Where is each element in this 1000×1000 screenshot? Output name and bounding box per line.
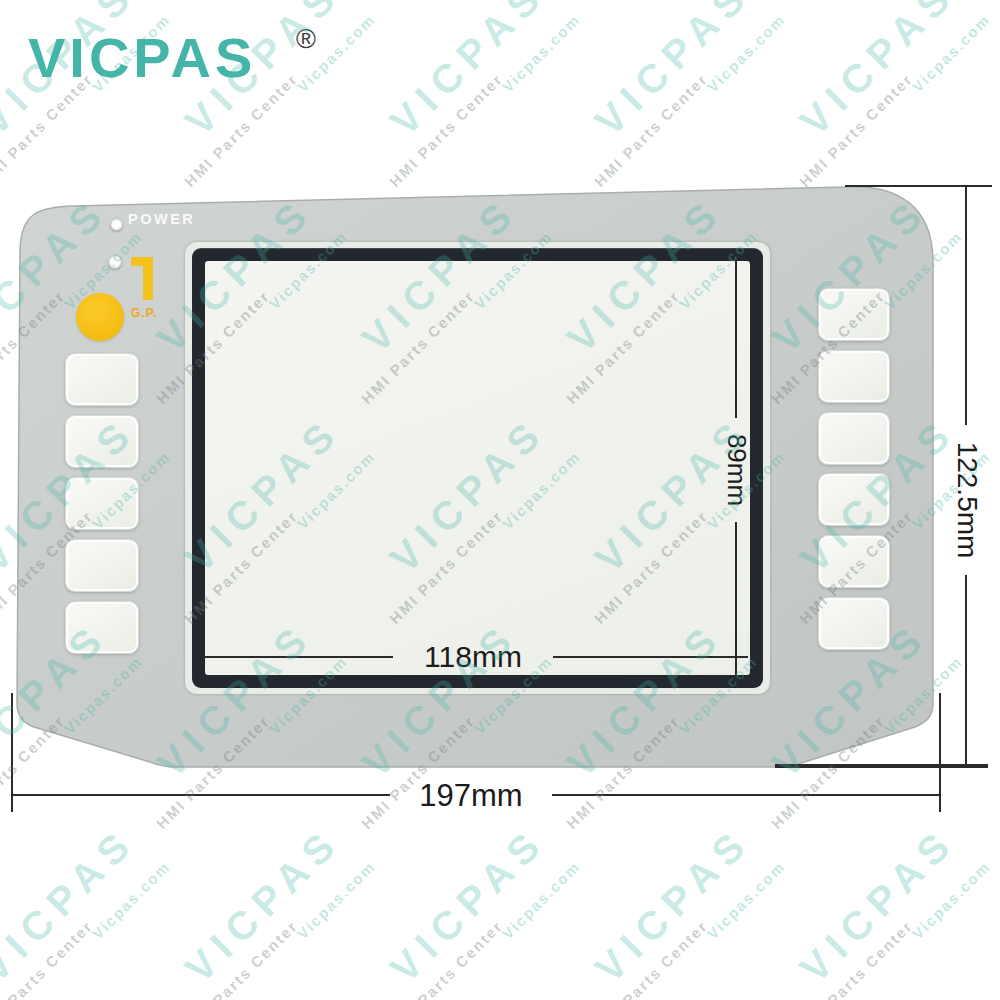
- right-function-key: [818, 473, 890, 526]
- dim-line-overall-height-lower: [965, 575, 967, 767]
- gp-label: G.P.: [131, 306, 157, 320]
- left-function-key: [65, 415, 139, 468]
- product-photo: VICPAS ® POWER G.P. 89mm 118mm 197mm 122…: [0, 0, 1000, 1000]
- left-function-key: [65, 601, 139, 654]
- dim-line-display-height-upper: [735, 256, 737, 418]
- dim-tick-overall-height-top: [845, 185, 992, 187]
- status-led-indicator: [108, 255, 122, 269]
- dim-line-overall-width-left: [12, 794, 390, 796]
- dim-label-overall-width: 197mm: [419, 780, 522, 811]
- dim-line-display-width-right: [553, 656, 748, 658]
- right-function-key: [818, 350, 890, 403]
- left-function-key: [65, 539, 139, 592]
- dim-label-display-width: 118mm: [424, 642, 522, 672]
- gp-round-key: [76, 293, 124, 341]
- dim-tick-overall-height-bottom: [775, 764, 988, 768]
- touchscreen-display: [205, 261, 750, 675]
- dim-line-overall-height-upper: [965, 186, 967, 425]
- right-function-key: [818, 597, 890, 650]
- dim-label-display-height: 89mm: [724, 434, 750, 506]
- right-function-key: [818, 535, 890, 588]
- power-led-indicator: [110, 218, 123, 231]
- left-function-key: [65, 477, 139, 530]
- power-label: POWER: [128, 211, 195, 227]
- dim-label-overall-height: 122.5mm: [953, 442, 981, 559]
- gp-marker-icon: [131, 257, 153, 300]
- vicpas-logo: VICPAS ®: [28, 30, 256, 86]
- left-function-key: [65, 353, 139, 406]
- dim-line-display-width-left: [205, 656, 393, 658]
- right-function-key: [818, 412, 890, 465]
- right-function-key: [818, 288, 890, 341]
- vicpas-logo-text: VICPAS: [28, 26, 256, 89]
- registered-trademark-icon: ®: [296, 24, 316, 55]
- dim-line-overall-width-right: [552, 794, 940, 796]
